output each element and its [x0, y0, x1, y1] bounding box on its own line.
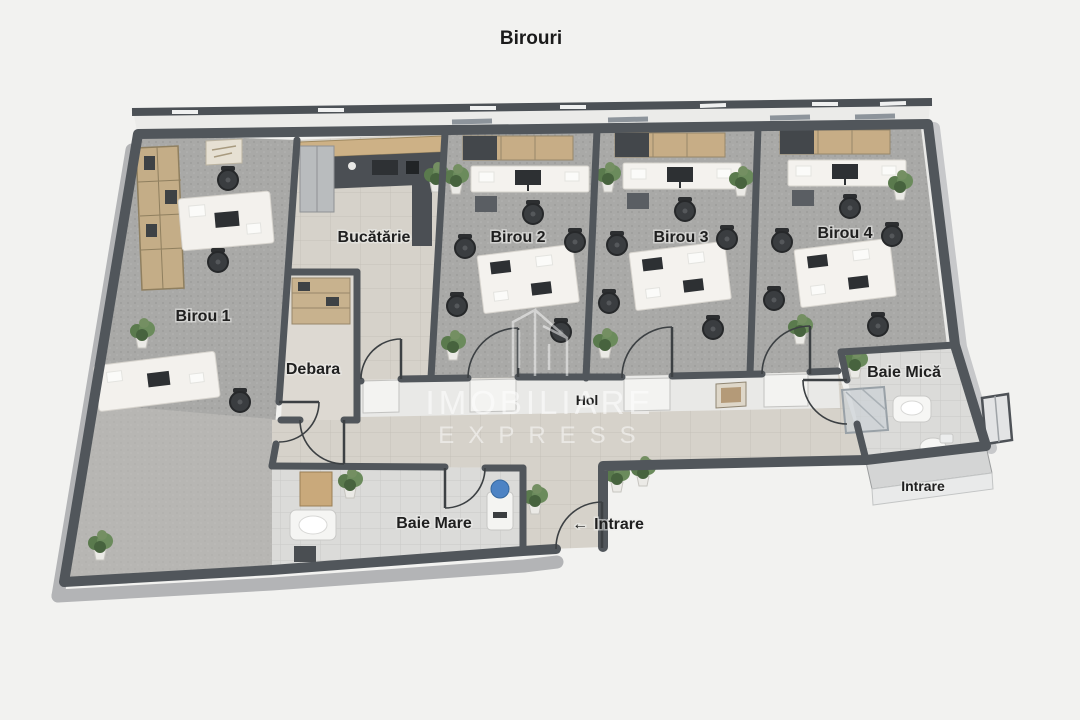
- page-title: Birouri: [500, 28, 562, 49]
- door-panel: [764, 374, 808, 407]
- bin: [294, 546, 316, 562]
- room-label-bucatarie: Bucătărie: [338, 229, 411, 246]
- room-label-birou-2: Birou 2: [490, 229, 545, 246]
- kitchen-counter: [412, 184, 432, 246]
- room-label-baie-mare: Baie Mare: [396, 515, 472, 532]
- floorplan-svg: Birou 1 Bucătărie Birou 2 Birou 3 Birou …: [0, 0, 1080, 720]
- left-arrow-icon: ←: [572, 516, 588, 533]
- floorplan-render: Birou 1 Bucătărie Birou 2 Birou 3 Birou …: [0, 0, 1080, 720]
- sink: [893, 396, 931, 422]
- wall-art-frame: [716, 382, 746, 408]
- water-cooler: [487, 480, 513, 530]
- door-panel: [363, 380, 399, 413]
- sink: [290, 510, 336, 540]
- desk: [178, 191, 274, 251]
- room-label-birou-3: Birou 3: [653, 229, 708, 246]
- room-label-birou-4: Birou 4: [817, 225, 872, 242]
- room-label-birou-1: Birou 1: [175, 308, 230, 325]
- bookshelf: [136, 146, 184, 290]
- entrance-door-label: ←Intrare: [572, 516, 644, 533]
- microwave: [372, 160, 398, 175]
- entrance-step-label: Intrare: [901, 478, 945, 494]
- coffee-machine: [406, 161, 419, 174]
- cabinet: [300, 472, 332, 506]
- wall-art-frame: [206, 139, 242, 165]
- debara-shelf: [292, 278, 350, 324]
- watermark-line1: IMOBILIARE: [426, 384, 655, 421]
- watermark-line2: EXPRESS: [438, 422, 649, 449]
- room-label-baie-mica: Baie Mică: [867, 364, 941, 381]
- room-label-debara: Debara: [286, 361, 340, 378]
